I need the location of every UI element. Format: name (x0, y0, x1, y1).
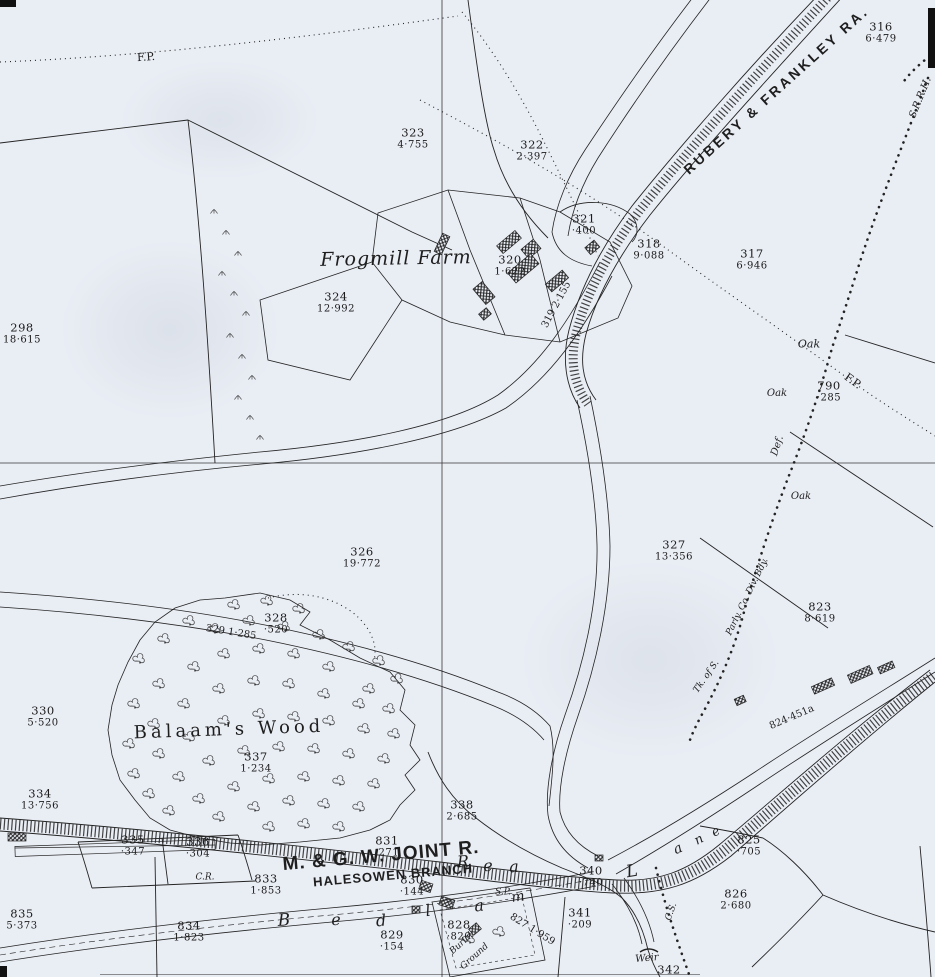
parcel-number: 328 (264, 612, 288, 625)
parcel-acreage: 1·234 (240, 764, 271, 776)
parcel-323: 3234·755 (397, 127, 428, 152)
parcel-number: 327 (655, 539, 693, 552)
parcel-acreage: 6·479 (865, 34, 896, 46)
scan-artifact (0, 966, 7, 977)
map-label-f-p: F.P. (137, 51, 156, 63)
parcel-322: 3222·397 (516, 139, 547, 164)
parcel-acreage: 2·680 (720, 901, 751, 913)
parcel-330: 3305·520 (27, 705, 58, 730)
parcel-acreage: ·304 (186, 849, 210, 861)
parcel-number: 338 (446, 799, 477, 812)
parcel-acreage: ·705 (737, 847, 761, 859)
map-label-oak: Oak (791, 492, 811, 502)
footpaths-dotted (0, 12, 935, 660)
parcel-acreage: ·400 (572, 226, 596, 238)
parcel-acreage: ·285 (817, 393, 841, 405)
parcel-number: 334 (21, 788, 59, 801)
parcel-830: 830·144 (400, 874, 424, 899)
parcel-acreage: 5·373 (6, 921, 37, 933)
map-label-m: m (510, 889, 525, 905)
parcel-acreage: 2·397 (516, 152, 547, 164)
parcel-number: 317 (736, 248, 767, 261)
parcel-number: 321 (572, 213, 596, 226)
parcel-number: 320 (494, 254, 525, 267)
parcel-835: 8355·373 (6, 908, 37, 933)
marsh-tuft-symbols (211, 209, 264, 440)
parcel-acreage: ·820 (447, 932, 471, 944)
parcel-327: 32713·356 (655, 539, 693, 564)
map-label-s-p: S.P. (495, 889, 511, 898)
parcel-823: 8238·619 (804, 601, 835, 626)
parcel-number: 340 (579, 865, 603, 878)
parcel-320: 3201·622 (494, 254, 525, 279)
parcel-number: 323 (397, 127, 428, 140)
parcel-318: 3189·088 (633, 238, 664, 263)
scan-artifact (100, 974, 700, 975)
parcel-831: 831·271 (375, 835, 399, 860)
parcel-acreage: 8·619 (804, 614, 835, 626)
parcel-number: 829 (380, 929, 404, 942)
parcel-number: 330 (27, 705, 58, 718)
parcel-790: 790·285 (817, 380, 841, 405)
parcel-834: 8341·823 (173, 920, 204, 945)
parcel-826: 8262·680 (720, 888, 751, 913)
parcel-number: 823 (804, 601, 835, 614)
parcel-317: 3176·946 (736, 248, 767, 273)
parcel-number: 831 (375, 835, 399, 848)
parcel-341: 341·209 (568, 907, 592, 932)
parcel-number: 834 (173, 920, 204, 933)
parcel-298: 29818·615 (3, 322, 41, 347)
parcel-number: 298 (3, 322, 41, 335)
parcel-acreage: ·144 (400, 887, 424, 899)
road-frogmill-southwest (0, 262, 612, 499)
grid-lines (0, 0, 935, 977)
parcel-number: 790 (817, 380, 841, 393)
parcel-335: 335·347 (121, 834, 145, 859)
parcel-825: 825·705 (737, 834, 761, 859)
parcel-336: 336·304 (186, 836, 210, 861)
map-label-a: a (473, 897, 485, 914)
map-label-b: B (277, 912, 290, 930)
parcel-number: 826 (720, 888, 751, 901)
scan-artifact (0, 0, 16, 7)
road-old-bed (0, 872, 596, 962)
map-label-e: e (483, 858, 493, 874)
parcel-acreage: 19·772 (343, 559, 381, 571)
parcel-acreage: 2·685 (446, 812, 477, 824)
map-label-weir: Weir (635, 953, 659, 965)
parcel-316: 3166·479 (865, 21, 896, 46)
parcel-acreage: 6·946 (736, 261, 767, 273)
parcel-number: 336 (186, 836, 210, 849)
parcel-acreage: 18·615 (3, 335, 41, 347)
parcel-number: 326 (343, 546, 381, 559)
parcel-number: 825 (737, 834, 761, 847)
map-label-r: R (457, 854, 470, 871)
parcel-acreage: ·271 (375, 848, 399, 860)
parcel-acreage: 1·823 (173, 933, 204, 945)
parcel-acreage: 1·853 (250, 886, 281, 898)
parcel-338: 3382·685 (446, 799, 477, 824)
map-label-frogmill-farm: Frogmill Farm (320, 248, 472, 270)
parcel-833: 8331·853 (250, 873, 281, 898)
parcel-acreage: 4·755 (397, 140, 428, 152)
lane-northeast (608, 658, 935, 874)
map-label-oak: Oak (798, 339, 820, 350)
parcel-324: 32412·992 (317, 291, 355, 316)
parcel-acreage: 13·356 (655, 552, 693, 564)
parcel-number: 341 (568, 907, 592, 920)
parcel-326: 32619·772 (343, 546, 381, 571)
parcel-337: 3371·234 (240, 751, 271, 776)
parcel-829: 829·154 (380, 929, 404, 954)
parcel-acreage: 12·992 (317, 304, 355, 316)
parcel-acreage: ·740 (579, 878, 603, 890)
parcel-acreage: 5·520 (27, 718, 58, 730)
parcel-acreage: ·209 (568, 920, 592, 932)
parcel-acreage: ·154 (380, 942, 404, 954)
parcel-acreage: 9·088 (633, 251, 664, 263)
scan-artifact (928, 8, 935, 68)
parcel-321: 321·400 (572, 213, 596, 238)
parcel-828: 828·820 (447, 919, 471, 944)
map-label-a: a (509, 859, 519, 875)
map-label-e: e (331, 912, 341, 928)
map-label-c-r: C.R. (195, 874, 214, 883)
wood-tree-symbols (123, 596, 504, 944)
parcel-334: 33413·756 (21, 788, 59, 813)
parcel-number: 835 (6, 908, 37, 921)
parcel-number: 318 (633, 238, 664, 251)
parcel-number: 335 (121, 834, 145, 847)
parcel-acreage: 1·622 (494, 267, 525, 279)
parcel-number: 828 (447, 919, 471, 932)
parcel-328: 328·520 (264, 612, 288, 637)
parcel-number: 322 (516, 139, 547, 152)
lane-frogmill-south (547, 396, 610, 868)
parcel-number: 337 (240, 751, 271, 764)
parcel-number: 830 (400, 874, 424, 887)
parcel-340: 340·740 (579, 865, 603, 890)
map-linework (0, 0, 935, 977)
parcel-acreage: ·347 (121, 847, 145, 859)
parcel-acreage: 13·756 (21, 801, 59, 813)
map-sheet: F.P.RUBERY & FRANKLEY RA.S.R.R.H.Frogmil… (0, 0, 935, 977)
parcel-number: 833 (250, 873, 281, 886)
parcel-number: 324 (317, 291, 355, 304)
parcel-number: 316 (865, 21, 896, 34)
map-label-oak: Oak (767, 389, 787, 399)
parcel-acreage: ·520 (264, 625, 288, 637)
field-boundaries (0, 0, 935, 977)
